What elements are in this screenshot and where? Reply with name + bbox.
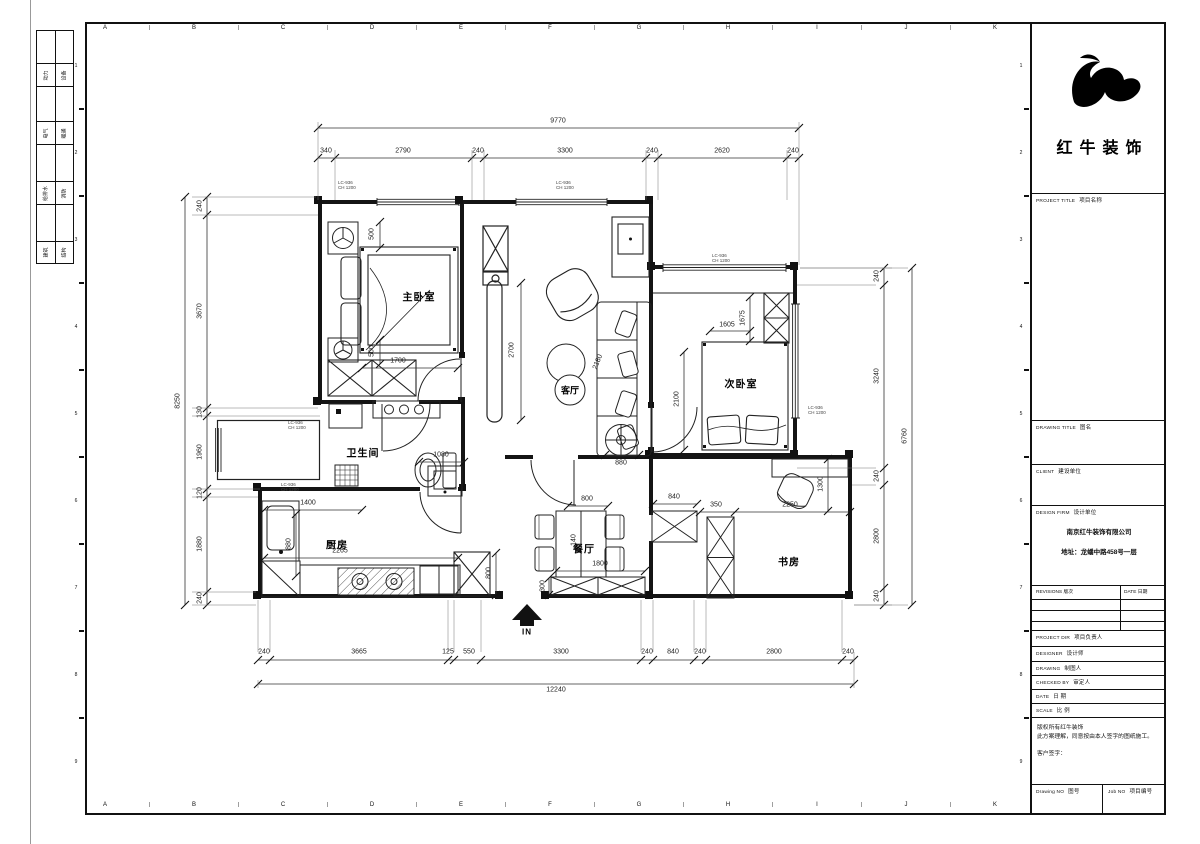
grid-tick-icon: | — [505, 25, 506, 31]
grid-dash-icon — [79, 108, 84, 110]
title-block: 红牛装饰 PROJECT TITLE项目名称 DRAWING TITLE图名 C… — [1032, 22, 1166, 815]
grid-letter-bottom: K — [993, 802, 997, 808]
grid-number-left: 6 — [75, 498, 78, 504]
copyright-notes: 版权所有红牛装饰 此方案理解，同意按由本人签字的图纸施工。 客户签字： — [1032, 717, 1166, 784]
grid-number-left: 7 — [75, 585, 78, 591]
row-label-en: CHECKED BY — [1036, 681, 1069, 686]
dim-seg-bottom: 840 — [667, 649, 679, 656]
grid-letter-bottom: D — [370, 802, 374, 808]
row-label-en: DESIGNER — [1036, 652, 1063, 657]
grid-dash-icon — [1024, 543, 1029, 545]
row-label-en: DATE — [1036, 695, 1049, 700]
grid-tick-icon: | — [327, 25, 328, 31]
room-label: 客厅 — [561, 384, 579, 397]
project-title-label-cn: 项目名称 — [1079, 198, 1102, 204]
grid-letter-bottom: C — [281, 802, 285, 808]
grid-number-right: 6 — [1020, 498, 1023, 504]
row-label-cn: 日 期 — [1053, 694, 1066, 700]
row-label-cn: 比 例 — [1057, 708, 1070, 714]
note-line: 客户签字： — [1032, 748, 1166, 757]
drawing-title-label-cn: 图名 — [1080, 425, 1091, 431]
grid-number-right: 2 — [1020, 150, 1023, 156]
grid-tick-icon: | — [505, 802, 506, 808]
drawing-row: DRAWING制图人 — [1032, 661, 1166, 675]
row-label-cn: 制图人 — [1064, 666, 1081, 672]
grid-letter-top: F — [548, 25, 552, 31]
grid-tick-icon: | — [327, 802, 328, 808]
grid-dash-icon — [1024, 456, 1029, 458]
dim-total-top: 9770 — [550, 118, 566, 125]
revisions-label-cn: 版次 — [1063, 590, 1073, 595]
grid-dash-icon — [79, 282, 84, 284]
grid-letter-top: K — [993, 25, 997, 31]
grid-dash-icon — [1024, 282, 1029, 284]
grid-letter-bottom: G — [637, 802, 642, 808]
grid-letter-bottom: J — [905, 802, 908, 808]
dim-inner: 800 — [486, 567, 493, 579]
grid-number-right: 8 — [1020, 672, 1023, 678]
grid-tick-icon: | — [416, 25, 417, 31]
grid-tick-icon: | — [594, 25, 595, 31]
dim-seg-right: 2800 — [874, 528, 881, 544]
job-no-label-cn: 项目编号 — [1129, 789, 1152, 795]
grid-number-left: 3 — [75, 237, 78, 243]
grid-number-right: 7 — [1020, 585, 1023, 591]
grid-tick-icon: | — [772, 25, 773, 31]
grid-number-left: 8 — [75, 672, 78, 678]
grid-number-right: 1 — [1020, 63, 1023, 69]
dim-seg-top: 3300 — [557, 148, 573, 155]
dim-seg-top: 240 — [787, 148, 799, 155]
grid-number-left: 5 — [75, 411, 78, 417]
date-row: DATE日 期 — [1032, 689, 1166, 703]
dim-seg-bottom: 3300 — [553, 649, 569, 656]
dim-inner: 2180 — [592, 353, 604, 370]
grid-dash-icon — [79, 456, 84, 458]
drawing-title-cell: DRAWING TITLE图名 — [1032, 420, 1166, 464]
designer-row: DESIGNER设计师 — [1032, 646, 1166, 661]
dim-inner: 1800 — [592, 561, 608, 568]
dim-seg-bottom: 240 — [694, 649, 706, 656]
grid-letter-top: E — [459, 25, 463, 31]
scale-row: SCALE比 例 — [1032, 703, 1166, 717]
grid-tick-icon: | — [950, 802, 951, 808]
dim-seg-top: 240 — [646, 148, 658, 155]
grid-tick-icon: | — [416, 802, 417, 808]
design-firm-cell: DESIGN FIRM设计单位 南京红牛装饰有限公司 地址：龙蟠中路458号一层 — [1032, 505, 1166, 585]
dim-inner: 1700 — [390, 358, 406, 365]
grid-letter-bottom: I — [816, 802, 818, 808]
dim-seg-bottom: 125 — [442, 649, 454, 656]
revisions-table: REVISIONS 版次 DATE 日期 — [1032, 585, 1166, 630]
checked-by-row: CHECKED BY审定人 — [1032, 675, 1166, 689]
grid-number-left: 9 — [75, 759, 78, 765]
project-title-cell: PROJECT TITLE项目名称 — [1032, 193, 1166, 420]
dim-inner: 500 — [369, 345, 376, 357]
dim-seg-bottom: 240 — [258, 649, 270, 656]
dim-inner: 350 — [710, 502, 722, 509]
dim-inner: 1675 — [740, 310, 747, 326]
grid-letter-top: A — [103, 25, 107, 31]
grid-number-left: 2 — [75, 150, 78, 156]
grid-tick-icon: | — [238, 802, 239, 808]
grid-tick-icon: | — [861, 802, 862, 808]
room-label: 次卧室 — [725, 376, 758, 391]
grid-tick-icon: | — [772, 802, 773, 808]
dim-seg-left: 1960 — [197, 444, 204, 460]
row-label-en: PROJECT DIR — [1036, 636, 1070, 641]
dim-total-right: 6760 — [902, 428, 909, 444]
dim-seg-top: 2790 — [395, 148, 411, 155]
drawing-title-label-en: DRAWING TITLE — [1036, 426, 1076, 431]
project-title-label-en: PROJECT TITLE — [1036, 199, 1075, 204]
client-cell: CLIENT建设单位 — [1032, 464, 1166, 505]
client-label-en: CLIENT — [1036, 470, 1054, 475]
grid-letter-top: G — [637, 25, 642, 31]
window-tag: LC-936CH 1200 — [808, 405, 826, 416]
dim-seg-right: 3240 — [874, 368, 881, 384]
dim-inner: 880 — [615, 460, 627, 467]
room-label: 卫生间 — [347, 445, 380, 460]
grid-letter-bottom: E — [459, 802, 463, 808]
dim-inner: 500 — [369, 228, 376, 240]
grid-dash-icon — [79, 369, 84, 371]
room-label: 书房 — [778, 554, 800, 569]
grid-letter-top: I — [816, 25, 818, 31]
logo-cell: 红牛装饰 — [1032, 22, 1166, 193]
dim-inner: 2100 — [674, 391, 681, 407]
grid-letter-top: H — [726, 25, 730, 31]
grid-number-right: 5 — [1020, 411, 1023, 417]
date-col-label-cn: 日期 — [1138, 590, 1148, 595]
grid-number-right: 4 — [1020, 324, 1023, 330]
grid-tick-icon: | — [149, 25, 150, 31]
dim-seg-left: 240 — [197, 592, 204, 604]
dim-inner: 2250 — [782, 502, 798, 509]
revisions-label-en: REVISIONS — [1036, 590, 1062, 595]
row-label-en: SCALE — [1036, 709, 1053, 714]
dim-seg-left: 120 — [197, 487, 204, 499]
drawing-no-label-en: Drawing NO — [1036, 790, 1064, 795]
dim-seg-right: 240 — [874, 270, 881, 282]
dim-seg-right: 240 — [874, 470, 881, 482]
grid-tick-icon: | — [238, 25, 239, 31]
grid-dash-icon — [1024, 717, 1029, 719]
row-label-en: DRAWING — [1036, 667, 1060, 672]
grid-letter-top: D — [370, 25, 374, 31]
room-label: 厨房 — [326, 537, 348, 552]
room-label: 餐厅 — [573, 541, 595, 556]
dim-inner: 1605 — [719, 322, 735, 329]
grid-tick-icon: | — [594, 802, 595, 808]
label-overlay: AA||BB||CC||DD||EE||FF||GG||HH||II||JJ||… — [0, 0, 1200, 844]
grid-letter-bottom: B — [192, 802, 196, 808]
drawing-sheet: 动力 设备 电气 暖通 给排水 消防 建筑 结构 — [0, 0, 1200, 844]
client-label-cn: 建设单位 — [1058, 469, 1081, 475]
dim-seg-left: 1880 — [197, 536, 204, 552]
grid-letter-bottom: F — [548, 802, 552, 808]
dim-seg-bottom: 3665 — [351, 649, 367, 656]
company-name: 红牛装饰 — [1032, 134, 1166, 158]
design-firm-label-cn: 设计单位 — [1074, 510, 1097, 516]
grid-tick-icon: | — [683, 25, 684, 31]
grid-dash-icon — [79, 543, 84, 545]
dim-seg-top: 240 — [472, 148, 484, 155]
grid-dash-icon — [1024, 369, 1029, 371]
dim-seg-top: 340 — [320, 148, 332, 155]
dim-inner: 2700 — [509, 342, 516, 358]
grid-letter-bottom: H — [726, 802, 730, 808]
drawing-no-cells: Drawing NO图号 Job NO项目编号 — [1032, 784, 1166, 815]
job-no-label-en: Job NO — [1108, 790, 1125, 795]
grid-dash-icon — [1024, 195, 1029, 197]
window-tag: LC-936CH 1200 — [338, 180, 356, 191]
dim-seg-left: 3670 — [197, 303, 204, 319]
row-label-cn: 审定人 — [1073, 680, 1090, 686]
window-tag: LC-936CH 1200 — [556, 180, 574, 191]
grid-tick-icon: | — [861, 25, 862, 31]
company-logo — [1056, 50, 1142, 128]
dim-total-left: 8250 — [175, 393, 182, 409]
window-tag: LC-936CH 1200 — [288, 420, 306, 431]
design-firm-label-en: DESIGN FIRM — [1036, 511, 1070, 516]
dim-seg-left: 240 — [197, 200, 204, 212]
dim-inner: 840 — [668, 494, 680, 501]
grid-number-right: 3 — [1020, 237, 1023, 243]
dim-inner: 1080 — [433, 452, 449, 459]
project-dir-row: PROJECT DIR项目负责人 — [1032, 630, 1166, 646]
drawing-no-label-cn: 图号 — [1068, 789, 1079, 795]
grid-dash-icon — [1024, 630, 1029, 632]
row-label-cn: 项目负责人 — [1074, 635, 1103, 641]
dim-total-bottom: 12240 — [546, 687, 565, 694]
window-tag: LC-936CH 1200 — [712, 253, 730, 264]
grid-tick-icon: | — [149, 802, 150, 808]
grid-tick-icon: | — [683, 802, 684, 808]
dim-inner: 300 — [540, 580, 547, 592]
dim-inner: 1300 — [818, 476, 825, 492]
grid-letter-top: J — [905, 25, 908, 31]
window-tag: LC-936CH 1200 — [281, 482, 299, 493]
grid-tick-icon: | — [950, 25, 951, 31]
firm-name: 南京红牛装饰有限公司 — [1032, 526, 1166, 536]
firm-address: 地址：龙蟠中路458号一层 — [1032, 546, 1166, 556]
entry-in-label: IN — [522, 628, 532, 637]
dim-inner: 800 — [581, 496, 593, 503]
grid-dash-icon — [79, 717, 84, 719]
grid-number-right: 9 — [1020, 759, 1023, 765]
grid-letter-top: C — [281, 25, 285, 31]
row-label-cn: 设计师 — [1067, 651, 1084, 657]
dim-seg-bottom: 240 — [842, 649, 854, 656]
date-col-label-en: DATE — [1124, 590, 1136, 595]
note-line: 此方案理解，同意按由本人签字的图纸施工。 — [1032, 731, 1166, 740]
dim-seg-left: 130 — [197, 406, 204, 418]
dim-seg-right: 240 — [874, 590, 881, 602]
grid-dash-icon — [79, 195, 84, 197]
note-line: 版权所有红牛装饰 — [1032, 722, 1166, 731]
dim-inner: 1400 — [300, 500, 316, 507]
grid-dash-icon — [79, 630, 84, 632]
grid-letter-bottom: A — [103, 802, 107, 808]
dim-seg-bottom: 550 — [463, 649, 475, 656]
grid-letter-top: B — [192, 25, 196, 31]
dim-seg-bottom: 240 — [641, 649, 653, 656]
room-label: 主卧室 — [403, 289, 436, 304]
dim-seg-bottom: 2800 — [766, 649, 782, 656]
grid-number-left: 1 — [75, 63, 78, 69]
dim-seg-top: 2620 — [714, 148, 730, 155]
grid-dash-icon — [1024, 108, 1029, 110]
grid-number-left: 4 — [75, 324, 78, 330]
dim-inner: 880 — [286, 538, 293, 550]
